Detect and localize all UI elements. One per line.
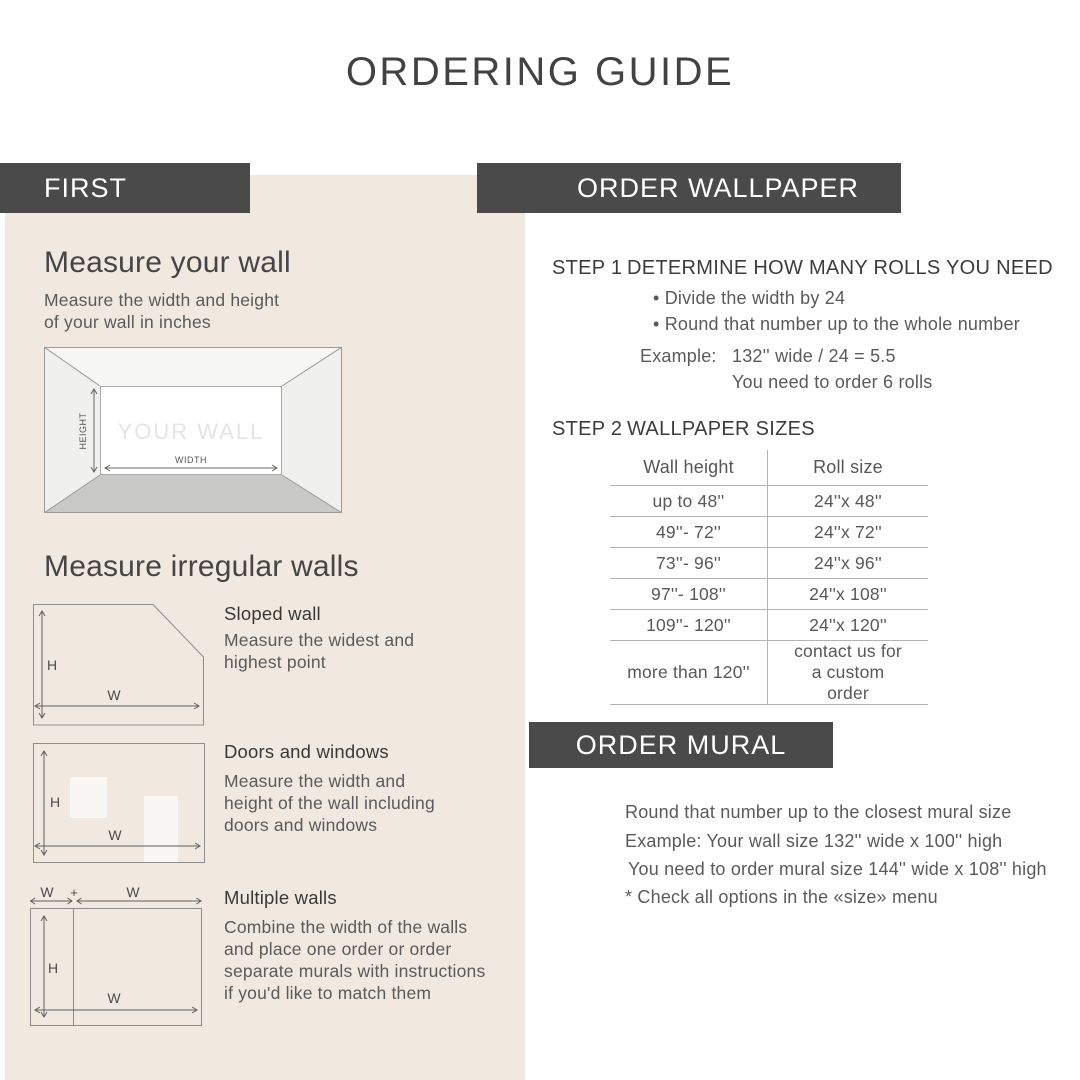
doors-windows-description: Measure the width and height of the wall… (224, 770, 456, 836)
table-header-roll-size: Roll size (768, 450, 929, 486)
sloped-wall-outline (34, 605, 204, 726)
sloped-h-label: H (47, 657, 57, 673)
window-shape (70, 777, 107, 818)
wallpaper-sizes-table: Wall height Roll size up to 48'' 24''x 4… (610, 450, 928, 705)
step1-example-result: You need to order 6 rolls (732, 372, 932, 393)
irregular-walls-heading: Measure irregular walls (44, 550, 359, 584)
multiple-walls-title: Multiple walls (224, 887, 337, 909)
doors-w-label: W (108, 827, 122, 843)
wall-height-cell: 73''- 96'' (610, 548, 768, 579)
step1-label: STEP 1 (552, 257, 622, 280)
table-header-wall-height: Wall height (610, 450, 768, 486)
first-section-header: FIRST (0, 163, 250, 213)
step1-example-calculation: 132'' wide / 24 = 5.5 (732, 346, 896, 367)
wall-height-cell: more than 120'' (610, 641, 768, 705)
step1-title: DETERMINE HOW MANY ROLLS YOU NEED (627, 257, 1053, 280)
mural-instruction-line: Round that number up to the closest mura… (625, 802, 1011, 823)
multiple-walls-diagram: W + W H W (30, 883, 203, 1027)
width-label: WIDTH (175, 455, 207, 465)
roll-size-cell: contact us for a custom order (768, 641, 929, 705)
roll-size-cell: 24''x 120'' (768, 610, 929, 641)
height-label: HEIGHT (78, 412, 88, 449)
step1-example-label: Example: (640, 346, 717, 367)
step1-bullet-2: Round that number up to the whole number (653, 314, 1020, 335)
sloped-wall-description: Measure the widest and highest point (224, 629, 439, 673)
wall-height-cell: 109''- 120'' (610, 610, 768, 641)
roll-size-cell: 24''x 72'' (768, 517, 929, 548)
roll-size-cell: 24''x 108'' (768, 579, 929, 610)
wall-height-cell: 97''- 108'' (610, 579, 768, 610)
roll-size-cell: 24''x 48'' (768, 486, 929, 517)
doors-windows-diagram: H W (33, 743, 205, 863)
order-mural-section-header: ORDER MURAL (529, 722, 833, 768)
order-wallpaper-section-header: ORDER WALLPAPER (477, 163, 901, 213)
wall-height-cell: 49''- 72'' (610, 517, 768, 548)
multiple-walls-description: Combine the width of the walls and place… (224, 916, 496, 1004)
multi-w2-label: W (126, 884, 140, 900)
measure-wall-heading: Measure your wall (44, 246, 291, 280)
doors-height-arrow (41, 751, 47, 855)
ordering-guide-page: ORDERING GUIDE FIRST ORDER WALLPAPER ORD… (0, 0, 1080, 1080)
mural-note-line: * Check all options in the «size» menu (625, 887, 938, 908)
doors-windows-title: Doors and windows (224, 741, 389, 763)
multi-h-label: H (48, 960, 58, 976)
sloped-wall-diagram: H W (33, 604, 205, 726)
mural-example-line: Example: Your wall size 132'' wide x 100… (625, 831, 1002, 852)
multi-w1-label: W (40, 884, 54, 900)
multi-w-label: W (107, 990, 121, 1006)
table-header-row: Wall height Roll size (610, 450, 928, 486)
roll-size-cell: 24''x 96'' (768, 548, 929, 579)
table-row: 73''- 96'' 24''x 96'' (610, 548, 928, 579)
multi-height-arrow (41, 916, 47, 1017)
sloped-wall-title: Sloped wall (224, 603, 321, 625)
multi-width-arrow (35, 1007, 197, 1013)
step1-bullet-1: Divide the width by 24 (653, 288, 845, 309)
sloped-width-arrow (35, 703, 199, 709)
door-shape (144, 796, 178, 862)
mural-result-line: You need to order mural size 144'' wide … (628, 859, 1047, 880)
measure-wall-description: Measure the width and height of your wal… (44, 289, 284, 333)
multi-plus-label: + (70, 885, 78, 900)
sloped-height-arrow (39, 611, 45, 718)
page-title: ORDERING GUIDE (0, 50, 1080, 95)
table-row: more than 120'' contact us for a custom … (610, 641, 928, 705)
table-row: 109''- 120'' 24''x 120'' (610, 610, 928, 641)
wall-height-cell: up to 48'' (610, 486, 768, 517)
doors-h-label: H (50, 794, 60, 810)
wall-perspective-diagram: YOUR WALL HEIGHT WIDTH (44, 347, 342, 513)
table-row: 97''- 108'' 24''x 108'' (610, 579, 928, 610)
step2-title: WALLPAPER SIZES (627, 418, 815, 441)
your-wall-label: YOUR WALL (118, 419, 265, 444)
table-row: up to 48'' 24''x 48'' (610, 486, 928, 517)
sloped-w-label: W (107, 687, 121, 703)
table-row: 49''- 72'' 24''x 72'' (610, 517, 928, 548)
step2-label: STEP 2 (552, 418, 622, 441)
